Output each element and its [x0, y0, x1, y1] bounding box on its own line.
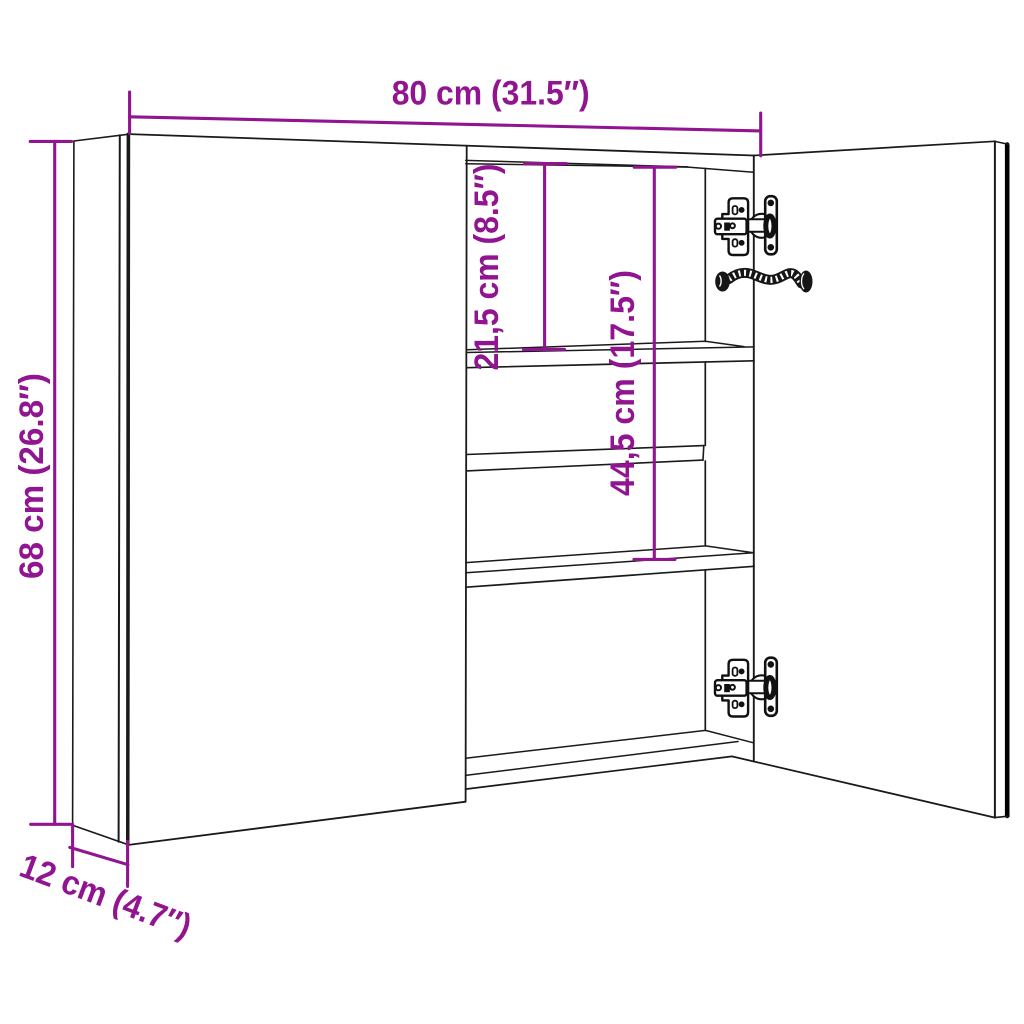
svg-text:21,5 cm (8.5″): 21,5 cm (8.5″) — [468, 164, 506, 371]
svg-text:80 cm (31.5″): 80 cm (31.5″) — [392, 75, 590, 113]
svg-text:68 cm (26.8″): 68 cm (26.8″) — [13, 373, 51, 579]
svg-text:44,5 cm (17.5″): 44,5 cm (17.5″) — [604, 270, 642, 496]
